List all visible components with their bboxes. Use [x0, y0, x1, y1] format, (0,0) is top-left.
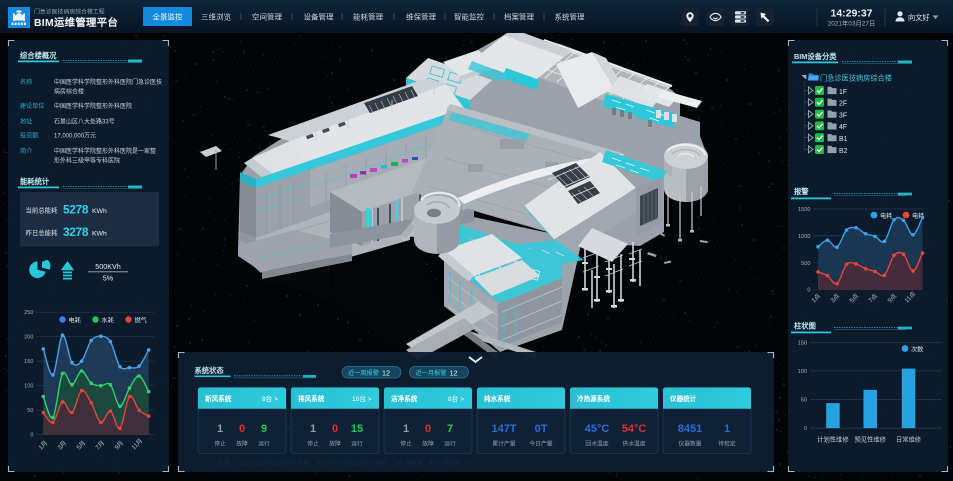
svg-text:中国医学科学院整形外科医院门急诊医技: 中国医学科学院整形外科医院门急诊医技: [54, 78, 162, 86]
svg-text:0T: 0T: [535, 423, 548, 435]
svg-text:8台 >: 8台 >: [448, 394, 464, 403]
svg-text:BIM设备分类: BIM设备分类: [794, 52, 837, 61]
svg-text:次数: 次数: [911, 346, 924, 354]
svg-text:近一周报警: 近一周报警: [348, 369, 379, 377]
svg-text:0: 0: [332, 423, 338, 435]
svg-text:空间管理: 空间管理: [252, 12, 282, 22]
svg-text:新风系统: 新风系统: [205, 394, 232, 403]
svg-text:BIM运维管理平台: BIM运维管理平台: [34, 16, 118, 29]
svg-text:100: 100: [798, 369, 807, 375]
svg-text:50: 50: [27, 408, 33, 414]
svg-text:待检定: 待检定: [718, 440, 736, 448]
svg-text:运行: 运行: [444, 440, 456, 448]
svg-text:简介: 简介: [20, 147, 32, 155]
svg-text:日常维修: 日常维修: [896, 435, 922, 444]
svg-text:50: 50: [801, 398, 807, 404]
svg-text:病房综合楼: 病房综合楼: [54, 88, 84, 96]
svg-text:0: 0: [239, 423, 245, 435]
svg-text:1: 1: [217, 423, 223, 435]
svg-text:16台 >: 16台 >: [352, 394, 372, 403]
svg-text:B2: B2: [839, 148, 848, 155]
svg-text:15: 15: [351, 423, 363, 435]
svg-text:KWh: KWh: [92, 208, 107, 215]
svg-text:三维浏览: 三维浏览: [201, 12, 231, 22]
svg-text:1500: 1500: [798, 207, 810, 213]
svg-text:门急诊医技病房综合楼: 门急诊医技病房综合楼: [820, 74, 892, 83]
svg-text:投资额: 投资额: [20, 132, 38, 140]
svg-text:柱状图: 柱状图: [794, 322, 816, 331]
svg-text:向文好: 向文好: [908, 13, 930, 22]
svg-text:45°C: 45°C: [585, 423, 610, 435]
svg-text:17,000,000万元: 17,000,000万元: [54, 133, 96, 140]
svg-text:3F: 3F: [839, 112, 847, 119]
svg-text:水耗: 水耗: [102, 317, 114, 325]
svg-text:门急诊医技病房综合楼工程: 门急诊医技病房综合楼工程: [34, 8, 105, 16]
svg-text:全景监控: 全景监控: [153, 12, 183, 22]
svg-text:3278: 3278: [63, 225, 89, 239]
svg-text:250: 250: [24, 310, 33, 316]
svg-text:形外科三级甲等专科医院: 形外科三级甲等专科医院: [54, 157, 120, 165]
svg-text:500KVh: 500KVh: [95, 262, 121, 271]
svg-text:电耗: 电耗: [69, 317, 81, 325]
svg-text:洁净系统: 洁净系统: [391, 394, 418, 403]
svg-text:运行: 运行: [258, 440, 270, 448]
svg-text:9: 9: [261, 423, 267, 435]
svg-text:当前总能耗: 当前总能耗: [26, 206, 59, 215]
svg-text:供水温度: 供水温度: [622, 440, 645, 448]
svg-text:报警: 报警: [794, 187, 809, 196]
svg-text:经度： 116.19357598259997 纬度：: 经度： 116.19357598259997 纬度： 39.9400439352…: [218, 459, 474, 467]
svg-text:0: 0: [425, 423, 431, 435]
svg-text:名称: 名称: [20, 78, 32, 86]
svg-text:9台 >: 9台 >: [262, 394, 278, 403]
svg-text:54°C: 54°C: [622, 423, 647, 435]
svg-text:B1: B1: [839, 136, 848, 143]
svg-text:2F: 2F: [839, 101, 847, 108]
svg-text:停止: 停止: [214, 440, 226, 448]
svg-text:近一月报警: 近一月报警: [416, 369, 447, 377]
svg-text:100: 100: [24, 384, 33, 390]
svg-text:地址: 地址: [20, 118, 32, 126]
svg-text:停止: 停止: [307, 440, 319, 448]
svg-text:仪器数量: 仪器数量: [678, 440, 701, 448]
svg-text:昨日总能耗: 昨日总能耗: [26, 228, 59, 237]
svg-text:0: 0: [804, 426, 807, 432]
svg-text:能耗管理: 能耗管理: [353, 12, 383, 22]
svg-text:1000: 1000: [798, 234, 810, 240]
svg-text:预见性维修: 预见性维修: [854, 435, 886, 444]
svg-text:停止: 停止: [400, 440, 412, 448]
svg-text:计划性维修: 计划性维修: [817, 435, 849, 444]
svg-text:500: 500: [801, 261, 810, 267]
svg-text:仪器统计: 仪器统计: [669, 394, 697, 403]
svg-text:故障: 故障: [236, 440, 248, 448]
svg-text:0: 0: [807, 288, 810, 294]
svg-text:综合楼概况: 综合楼概况: [20, 51, 57, 60]
svg-text:200: 200: [24, 335, 33, 341]
svg-text:8451: 8451: [678, 423, 702, 435]
svg-text:运行: 运行: [351, 440, 363, 448]
svg-text:KWh: KWh: [92, 231, 107, 238]
svg-text:1: 1: [310, 423, 316, 435]
svg-text:5%: 5%: [103, 274, 114, 283]
svg-text:系统状态: 系统状态: [195, 366, 225, 375]
svg-text:2021年03月27日: 2021年03月27日: [828, 19, 876, 28]
svg-text:5278: 5278: [63, 203, 89, 217]
svg-text:智能监控: 智能监控: [454, 12, 484, 22]
svg-text:维保管理: 维保管理: [406, 12, 436, 22]
svg-text:147T: 147T: [491, 423, 516, 435]
svg-text:150: 150: [24, 359, 33, 365]
svg-text:中国医学科学院整形外科医院是一家整: 中国医学科学院整形外科医院是一家整: [54, 147, 156, 155]
svg-text:7: 7: [447, 423, 453, 435]
svg-text:回水温度: 回水温度: [585, 440, 608, 448]
svg-text:1: 1: [724, 423, 730, 435]
svg-text:1: 1: [403, 423, 409, 435]
svg-text:14:29:37: 14:29:37: [830, 8, 872, 20]
svg-text:1F: 1F: [839, 89, 847, 96]
svg-text:电耗: 电耗: [880, 212, 892, 220]
svg-text:12: 12: [450, 368, 458, 377]
svg-text:4F: 4F: [839, 124, 847, 131]
svg-text:中国医学科学院整形外科医院: 中国医学科学院整形外科医院: [54, 102, 132, 110]
svg-text:故障: 故障: [422, 440, 434, 448]
svg-text:今日产量: 今日产量: [529, 440, 552, 448]
svg-text:排风系统: 排风系统: [298, 394, 325, 403]
svg-text:冷热源系统: 冷热源系统: [577, 394, 610, 403]
svg-text:12: 12: [382, 368, 390, 377]
svg-text:故障: 故障: [329, 440, 341, 448]
svg-text:系统管理: 系统管理: [555, 12, 585, 22]
svg-text:累计产量: 累计产量: [492, 440, 515, 448]
svg-text:设备管理: 设备管理: [304, 12, 334, 22]
svg-text:150: 150: [798, 340, 807, 346]
svg-text:燃气: 燃气: [135, 317, 147, 325]
svg-text:建设单位: 建设单位: [20, 102, 44, 110]
svg-text:纯水系统: 纯水系统: [484, 394, 511, 403]
svg-text:能耗统计: 能耗统计: [20, 177, 50, 186]
svg-text:档案管理: 档案管理: [504, 12, 534, 22]
svg-text:0: 0: [30, 433, 33, 439]
svg-text:石景山区八大处路33号: 石景山区八大处路33号: [54, 118, 115, 126]
